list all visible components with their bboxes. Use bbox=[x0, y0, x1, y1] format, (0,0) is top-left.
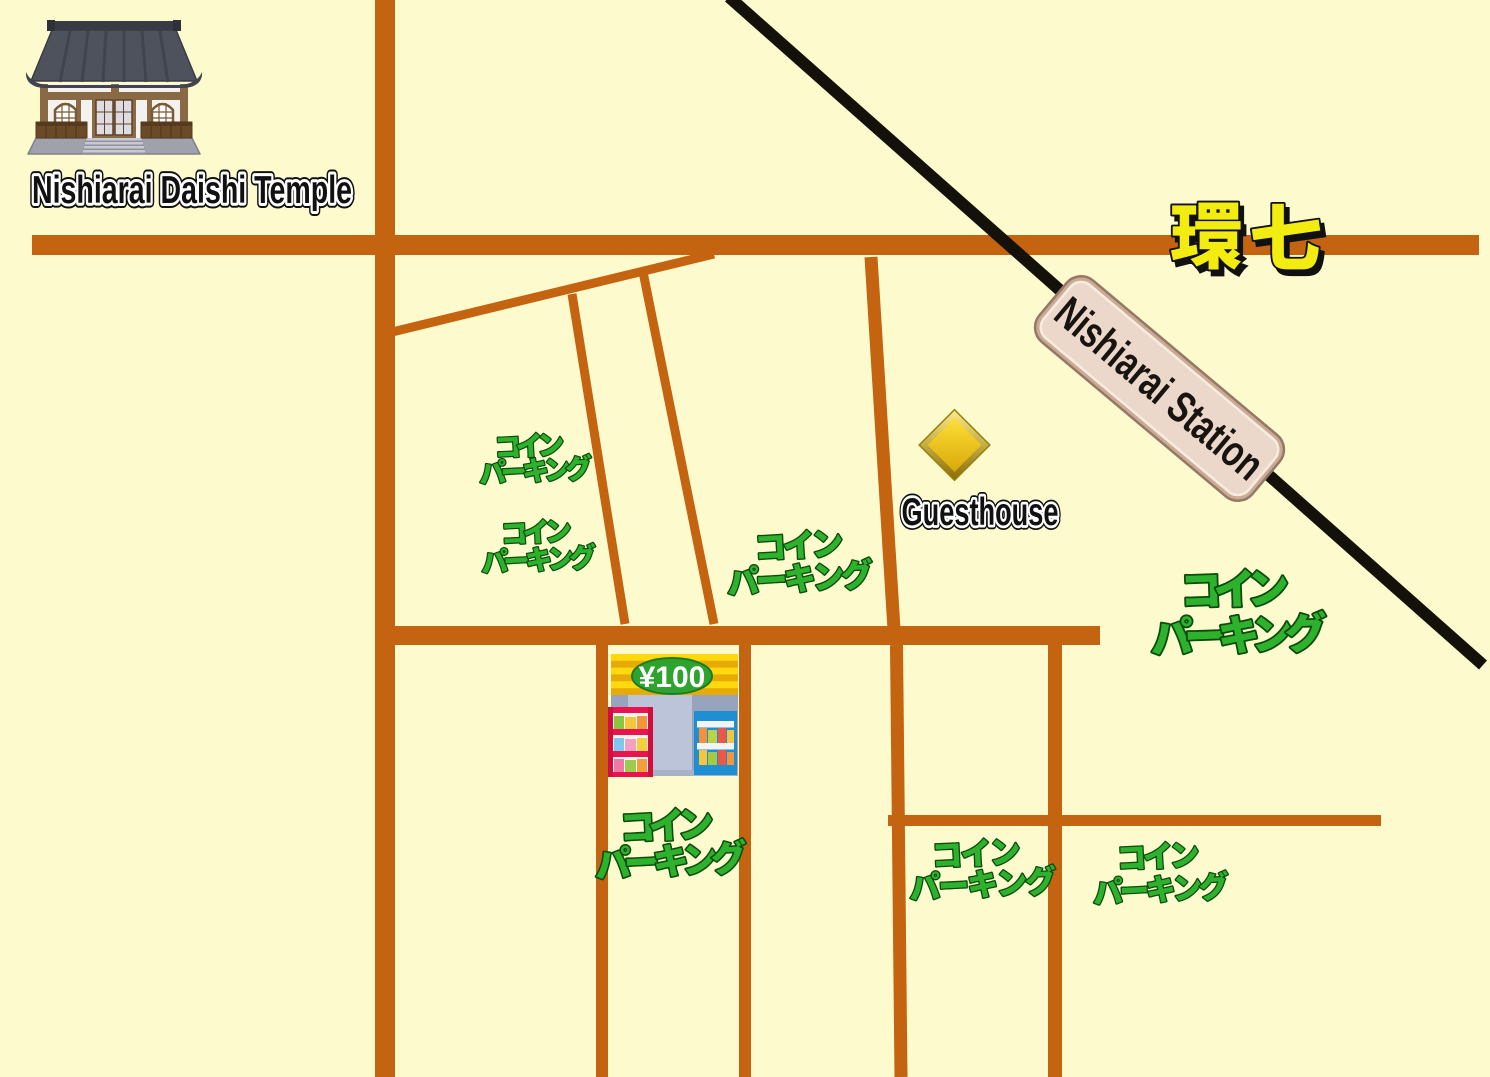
svg-text:Guesthouse: Guesthouse bbox=[902, 491, 1059, 534]
svg-text:Nishiarai Daishi Temple: Nishiarai Daishi Temple bbox=[32, 169, 352, 212]
svg-text:¥100: ¥100 bbox=[639, 661, 706, 694]
